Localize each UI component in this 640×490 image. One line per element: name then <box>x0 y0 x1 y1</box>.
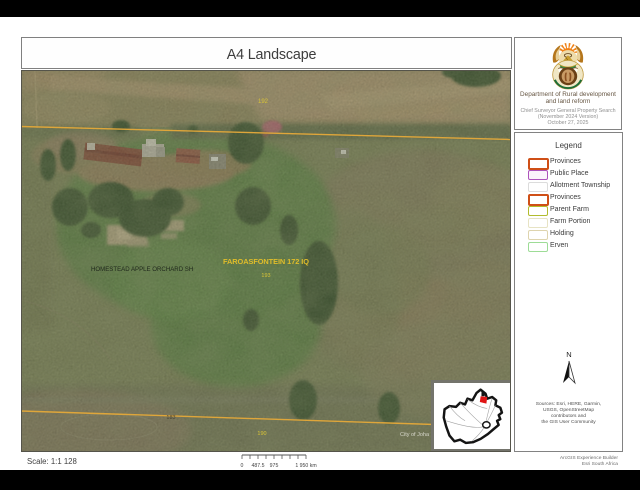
svg-text:190: 190 <box>257 431 266 437</box>
svg-text:487.5: 487.5 <box>252 463 265 469</box>
svg-text:FAROASFONTEIN 172 IQ: FAROASFONTEIN 172 IQ <box>223 257 309 266</box>
svg-text:975: 975 <box>270 463 279 469</box>
svg-text:192: 192 <box>258 99 269 105</box>
svg-text:HOMESTEAD APPLE ORCHARD SH: HOMESTEAD APPLE ORCHARD SH <box>91 266 193 273</box>
svg-text:193: 193 <box>261 273 270 279</box>
svg-text:183: 183 <box>166 415 175 421</box>
svg-text:N: N <box>566 350 571 359</box>
svg-text:City of Joha: City of Joha <box>400 432 430 438</box>
svg-text:0: 0 <box>241 463 244 469</box>
svg-text:1 950 km: 1 950 km <box>295 463 316 469</box>
